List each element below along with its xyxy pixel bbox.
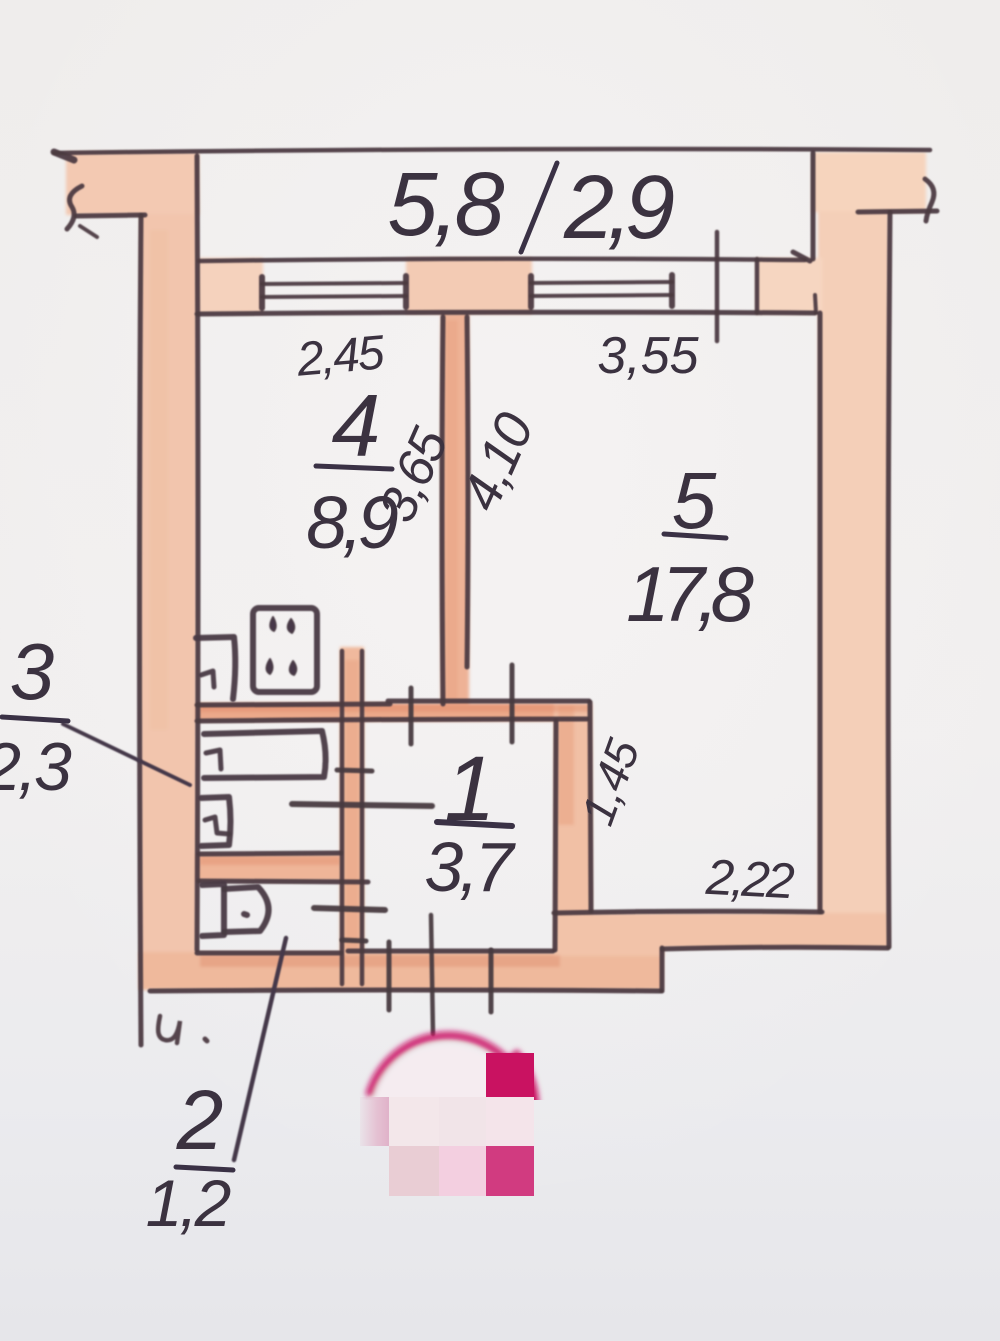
- svg-text:3,7: 3,7: [424, 828, 516, 906]
- svg-text:2: 2: [176, 1073, 224, 1167]
- svg-text:4: 4: [332, 376, 381, 475]
- svg-text:5: 5: [672, 456, 717, 545]
- svg-text:17,8: 17,8: [626, 550, 753, 638]
- svg-text:3: 3: [10, 627, 55, 716]
- svg-text:1,2: 1,2: [146, 1166, 231, 1240]
- svg-text:2,22: 2,22: [704, 849, 796, 910]
- svg-text:2,9: 2,9: [563, 158, 674, 258]
- svg-text:5,8: 5,8: [387, 155, 504, 255]
- svg-text:3,55: 3,55: [597, 327, 699, 385]
- svg-text:2,3: 2,3: [0, 729, 72, 805]
